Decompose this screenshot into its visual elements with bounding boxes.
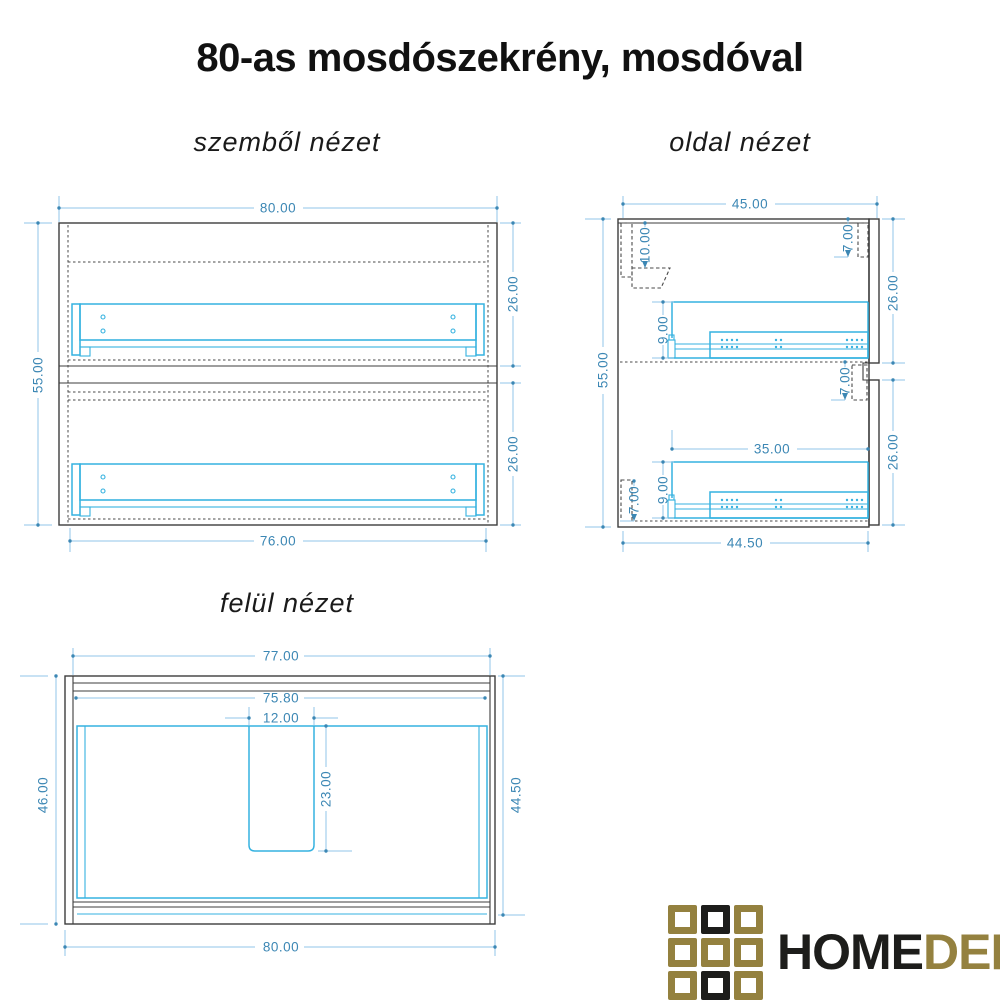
homedepo-logo-grid: [668, 905, 763, 1000]
logo-square-black: [701, 905, 730, 934]
top-dim-carcass-width: 77.00: [263, 649, 299, 664]
side-front-fix-bracket-mid: [852, 365, 867, 400]
logo-text-depo: DEPO: [923, 924, 1000, 980]
homedepo-logo-text: HOMEDEPO: [777, 905, 1000, 1000]
logo-square-gold: [734, 938, 763, 967]
top-view: 77.00 75.80 12.00 23.00: [20, 648, 525, 956]
side-dim-plinth-gap: 7.00: [627, 486, 642, 514]
logo-text-home: HOME: [777, 924, 923, 980]
top-dim-cutout-width: 12.00: [263, 711, 299, 726]
logo-square-gold: [668, 971, 697, 1000]
side-dim-hanger-offset: 10.00: [638, 227, 653, 263]
front-dim-top-width: 80.00: [260, 201, 296, 216]
front-dim-total-height: 55.00: [31, 357, 46, 393]
top-dimensions: 77.00 75.80 12.00 23.00: [20, 648, 525, 956]
side-drawer-lower: [668, 462, 868, 518]
logo-square-gold: [734, 905, 763, 934]
homedepo-logo: HOMEDEPO: [668, 905, 1000, 1000]
front-cabinet-outline: [59, 223, 497, 525]
side-dim-front-gap-top: 7.00: [841, 224, 856, 252]
side-dimensions: 45.00 55.00 10.00 7.00: [585, 196, 905, 552]
front-dim-drawer-upper-height: 26.00: [506, 276, 521, 312]
front-drawer-upper: [72, 304, 484, 356]
front-dimensions: 80.00 55.00 26.00 26.00: [24, 196, 521, 552]
side-dim-front-upper-height: 26.00: [886, 275, 901, 311]
side-dim-bottom-depth: 44.50: [727, 536, 763, 551]
side-wall-bracket: [632, 268, 670, 288]
logo-square-black: [701, 971, 730, 1000]
front-drawer-lower: [72, 464, 484, 516]
side-front-fix-bracket-upper: [858, 223, 868, 257]
front-dim-drawer-lower-height: 26.00: [506, 436, 521, 472]
side-dim-rail-upper-height: 9.00: [656, 316, 671, 344]
top-dim-right-depth: 44.50: [509, 777, 524, 813]
front-view: 80.00 55.00 26.00 26.00: [24, 196, 521, 552]
top-dim-total-width: 80.00: [263, 940, 299, 955]
top-dim-left-depth: 46.00: [36, 777, 51, 813]
side-dim-front-gap-mid: 7.00: [838, 367, 853, 395]
top-dim-cutout-depth: 23.00: [319, 771, 334, 807]
side-dim-rail-lower-height: 9.00: [656, 476, 671, 504]
top-carcass-below: [77, 726, 487, 914]
side-drawer-upper: [668, 302, 868, 358]
side-dim-total-height: 55.00: [596, 352, 611, 388]
logo-square-gold: [701, 938, 730, 967]
logo-square-gold: [668, 938, 697, 967]
logo-square-gold: [668, 905, 697, 934]
side-dim-drawer-depth: 35.00: [754, 442, 790, 457]
logo-square-gold: [734, 971, 763, 1000]
top-siphon-cutout: [249, 726, 314, 851]
technical-drawing-canvas: 80.00 55.00 26.00 26.00: [0, 0, 1000, 1000]
side-dim-top-depth: 45.00: [732, 197, 768, 212]
side-dim-front-lower-height: 26.00: [886, 434, 901, 470]
side-view: 45.00 55.00 10.00 7.00: [585, 196, 905, 552]
front-dim-bottom-width: 76.00: [260, 534, 296, 549]
top-dim-inner-width: 75.80: [263, 691, 299, 706]
